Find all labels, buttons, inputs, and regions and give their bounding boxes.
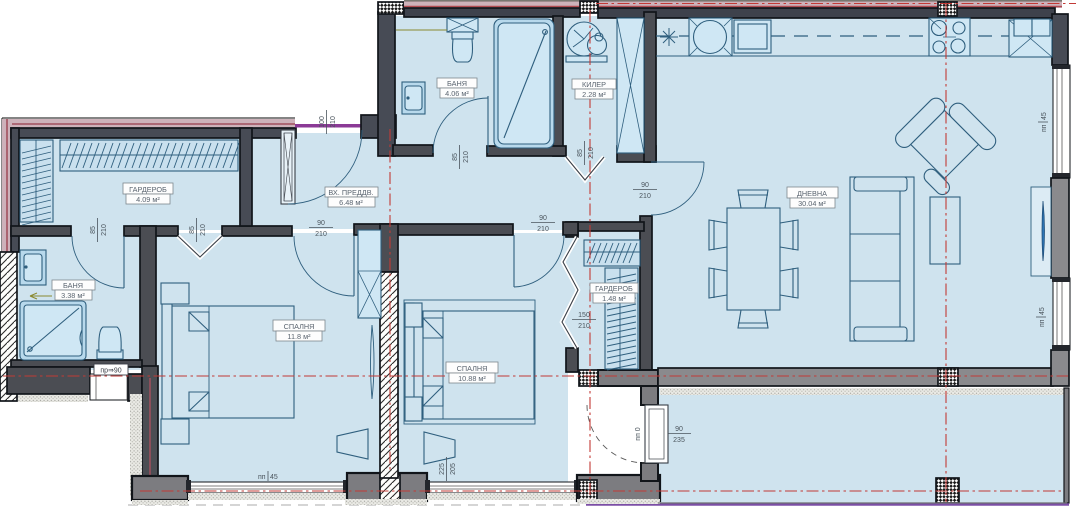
svg-text:11.8 м²: 11.8 м² (287, 332, 311, 341)
svg-text:85: 85 (90, 226, 97, 234)
svg-text:2.28 м²: 2.28 м² (582, 90, 606, 99)
svg-text:210: 210 (639, 193, 651, 200)
svg-text:235: 235 (673, 437, 685, 444)
svg-text:210: 210 (101, 224, 108, 236)
svg-text:210: 210 (537, 226, 549, 233)
svg-text:ВХ. ПРЕДДВ.: ВХ. ПРЕДДВ. (328, 188, 373, 197)
svg-text:150: 150 (578, 312, 590, 319)
svg-text:4.09 м²: 4.09 м² (136, 195, 160, 204)
svg-text:205: 205 (450, 463, 457, 475)
svg-text:БАНЯ: БАНЯ (63, 281, 83, 290)
svg-text:210: 210 (578, 323, 590, 330)
svg-text:пп: пп (258, 474, 266, 481)
svg-text:10.88 м²: 10.88 м² (458, 374, 486, 383)
svg-text:пп: пп (1041, 124, 1048, 132)
svg-text:45: 45 (1041, 112, 1048, 120)
svg-text:БАНЯ: БАНЯ (447, 79, 467, 88)
svg-text:пр⇒90: пр⇒90 (100, 368, 121, 375)
svg-text:225: 225 (439, 463, 446, 475)
svg-text:пп: пп (1039, 319, 1046, 327)
svg-text:85: 85 (577, 149, 584, 157)
svg-text:СПАЛНЯ: СПАЛНЯ (457, 364, 488, 373)
svg-text:210: 210 (200, 224, 207, 236)
svg-text:45: 45 (270, 474, 278, 481)
svg-text:ДНЕВНА: ДНЕВНА (797, 189, 827, 198)
svg-text:210: 210 (588, 147, 595, 159)
svg-text:4.06 м²: 4.06 м² (445, 89, 469, 98)
svg-text:ГАРДЕРОБ: ГАРДЕРОБ (595, 284, 633, 293)
svg-text:90: 90 (641, 182, 649, 189)
svg-text:210: 210 (315, 231, 327, 238)
svg-text:85: 85 (189, 226, 196, 234)
svg-text:КИЛЕР: КИЛЕР (582, 80, 606, 89)
svg-text:1.48 м²: 1.48 м² (602, 294, 626, 303)
svg-text:210: 210 (463, 151, 470, 163)
svg-text:3.38 м²: 3.38 м² (61, 291, 85, 300)
svg-text:6.48 м²: 6.48 м² (339, 198, 363, 207)
svg-text:30.04 м²: 30.04 м² (798, 199, 826, 208)
svg-text:СПАЛНЯ: СПАЛНЯ (284, 322, 315, 331)
svg-text:85: 85 (452, 153, 459, 161)
svg-text:ГАРДЕРОБ: ГАРДЕРОБ (129, 185, 167, 194)
svg-text:90: 90 (675, 426, 683, 433)
svg-text:210: 210 (330, 116, 337, 128)
svg-text:45: 45 (1039, 307, 1046, 315)
svg-text:100: 100 (319, 116, 326, 128)
svg-text:90: 90 (539, 215, 547, 222)
svg-text:90: 90 (317, 220, 325, 227)
svg-text:пп 0: пп 0 (635, 427, 642, 441)
